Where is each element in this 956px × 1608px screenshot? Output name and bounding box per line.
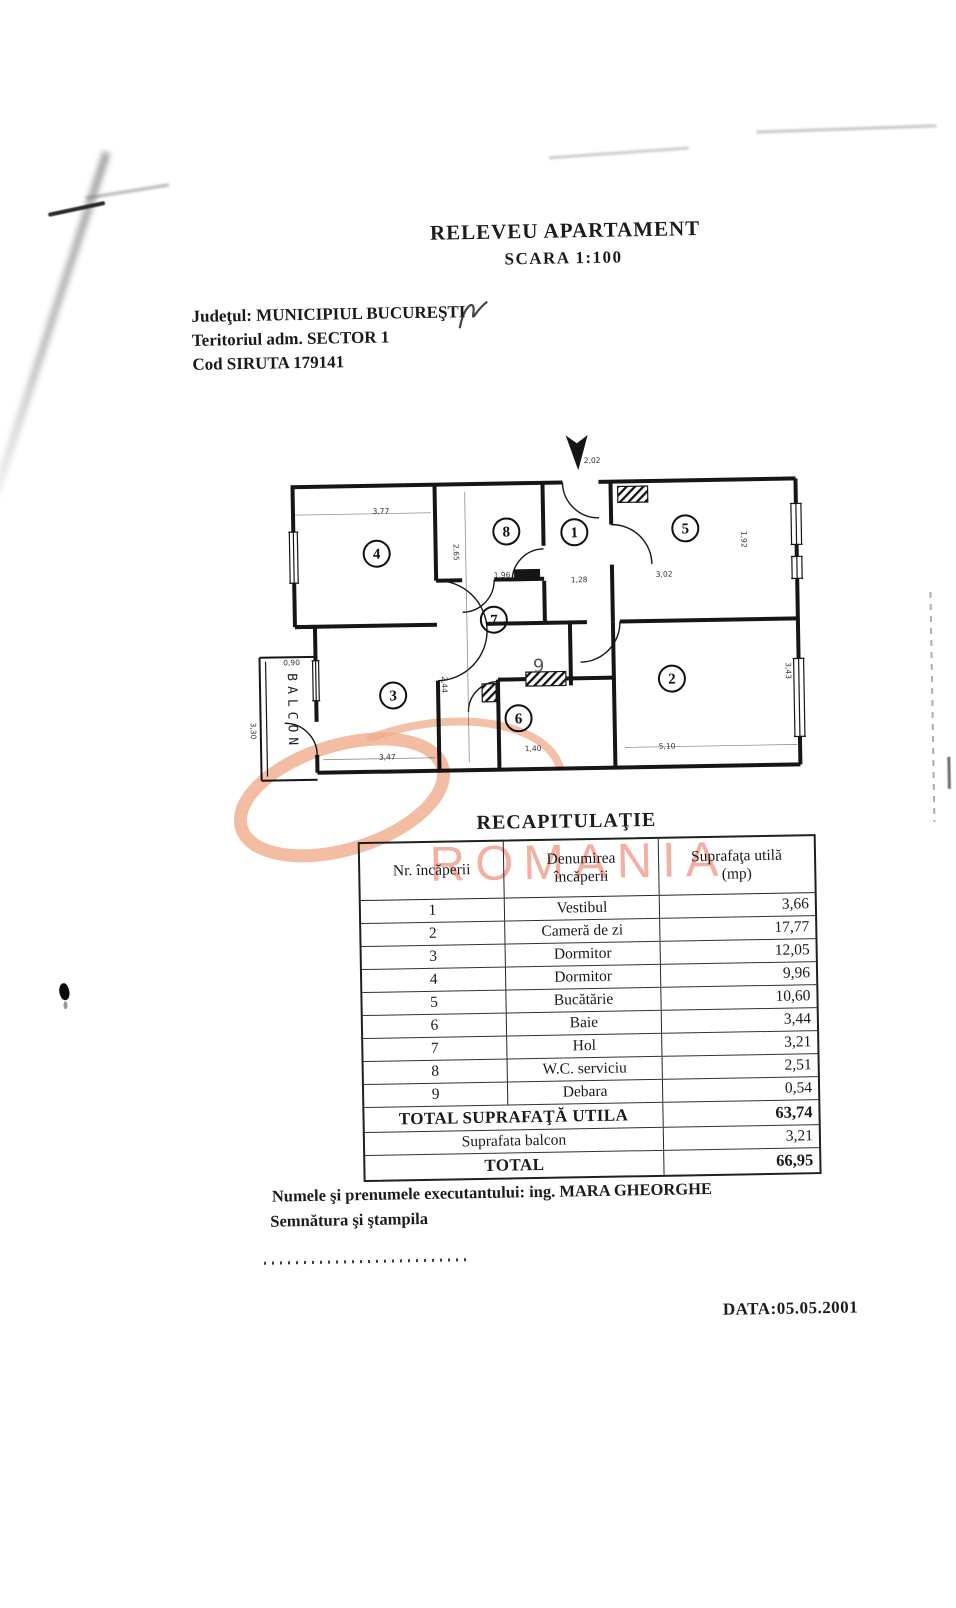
cell-area: 3,66 bbox=[660, 893, 815, 918]
hatched-shaft bbox=[526, 671, 566, 686]
shaft-block bbox=[514, 569, 540, 579]
cell-nr: 4 bbox=[362, 968, 506, 993]
ink-blob-artifact bbox=[63, 1001, 67, 1009]
room-marker: 9 bbox=[533, 656, 545, 677]
siruta-line: Cod SIRUTA 179141 bbox=[192, 348, 466, 377]
room-marker: 5 bbox=[672, 515, 698, 541]
county-line: Judeţul: MUNICIPIUL BUCUREŞTI bbox=[191, 300, 465, 329]
cell-name: Debara bbox=[508, 1080, 663, 1105]
scanned-page: RELEVEU APARTAMENT SCARA 1:100 Judeţul: … bbox=[0, 0, 956, 1608]
header-nr-label: Nr. încăperii bbox=[393, 861, 471, 880]
signature-line: Semnătura şi ştampila bbox=[270, 1209, 428, 1232]
cell-area: 9,96 bbox=[661, 962, 816, 987]
dimension-label: 3,43 bbox=[784, 662, 793, 679]
cell-nr: 3 bbox=[362, 945, 506, 970]
dimension-label: 3,77 bbox=[373, 507, 390, 516]
scan-streak-artifact bbox=[0, 151, 110, 496]
cell-area: 10,60 bbox=[661, 985, 816, 1010]
ink-blob-artifact bbox=[57, 982, 71, 1001]
header-denumirea-line1: Denumirea bbox=[546, 850, 615, 869]
door-arc bbox=[611, 524, 652, 565]
scale-label: SCARA 1:100 bbox=[504, 247, 622, 269]
cell-area: 3,44 bbox=[662, 1008, 817, 1033]
pen-mark-artifact-faint bbox=[86, 183, 169, 199]
door-arc bbox=[437, 630, 488, 681]
smudge-artifact bbox=[756, 124, 936, 133]
cell-name: Bucătărie bbox=[506, 988, 661, 1013]
door-arc bbox=[436, 580, 487, 631]
total-util-value: 63,74 bbox=[663, 1100, 818, 1127]
room-number: 9 bbox=[533, 656, 545, 677]
table-title: RECAPITULAŢIE bbox=[476, 809, 656, 835]
window-symbol bbox=[793, 658, 806, 736]
pen-mark-artifact bbox=[48, 201, 106, 217]
cell-name: Cameră de zi bbox=[505, 919, 660, 944]
window-symbol bbox=[288, 532, 299, 583]
room-number: 8 bbox=[502, 524, 510, 540]
table-body: 1Vestibul3,662Cameră de zi17,773Dormitor… bbox=[361, 893, 819, 1108]
cell-nr: 1 bbox=[361, 899, 505, 924]
dimension-label: 1,92 bbox=[739, 531, 748, 548]
room-number: 2 bbox=[668, 672, 676, 688]
header-denumirea: Denumirea încăperii bbox=[504, 839, 660, 898]
hatched-shaft bbox=[618, 486, 648, 503]
cell-name: Dormitor bbox=[506, 965, 661, 990]
dimension-label: 2,44 bbox=[440, 676, 449, 693]
page-title: RELEVEU APARTAMENT bbox=[430, 216, 701, 246]
room-number: 1 bbox=[570, 525, 578, 541]
dimension-label: 2,02 bbox=[584, 456, 601, 465]
table-header-row: Nr. încăperii Denumirea încăperii Supraf… bbox=[360, 836, 815, 901]
dimension-label: 5,10 bbox=[659, 742, 676, 751]
executor-line: Numele şi prenumele executantului: ing. … bbox=[272, 1179, 712, 1207]
header-suprafata-line2: (mp) bbox=[722, 865, 752, 884]
entrance-arrow-icon bbox=[566, 435, 589, 470]
cell-area: 17,77 bbox=[660, 916, 815, 941]
header-denumirea-line2: încăperii bbox=[554, 868, 609, 887]
room-marker: 8 bbox=[493, 518, 519, 544]
cell-name: W.C. serviciu bbox=[508, 1057, 663, 1082]
balcony-value: 3,21 bbox=[664, 1125, 819, 1150]
header-suprafata-line1: Suprafaţa utilă bbox=[691, 847, 782, 867]
cell-name: Baie bbox=[507, 1011, 662, 1036]
cell-area: 0,54 bbox=[663, 1077, 818, 1102]
window-symbol bbox=[312, 661, 321, 701]
room-marker: 7 bbox=[481, 606, 507, 632]
cell-area: 2,51 bbox=[663, 1054, 818, 1079]
total-value: 66,95 bbox=[664, 1148, 819, 1175]
room-marker: 4 bbox=[363, 541, 389, 567]
cell-nr: 6 bbox=[363, 1014, 507, 1039]
dimension-label: 2,65 bbox=[452, 544, 461, 561]
room-marker: 1 bbox=[561, 519, 587, 545]
recap-table: Nr. încăperii Denumirea încăperii Supraf… bbox=[358, 834, 822, 1182]
dotted-signature-line bbox=[264, 1258, 472, 1265]
cell-nr: 2 bbox=[361, 922, 505, 947]
cell-nr: 5 bbox=[362, 991, 506, 1016]
scan-mark-artifact bbox=[947, 757, 951, 789]
address-block: Judeţul: MUNICIPIUL BUCUREŞTI Teritoriul… bbox=[191, 300, 466, 377]
dimension-label: 1,96 bbox=[494, 570, 511, 579]
window-symbol bbox=[791, 556, 803, 578]
cell-nr: 8 bbox=[364, 1060, 508, 1085]
room-marker: 2 bbox=[659, 665, 685, 691]
total-label: TOTAL bbox=[365, 1151, 664, 1180]
cell-nr: 7 bbox=[363, 1037, 507, 1062]
cell-name: Dormitor bbox=[506, 942, 661, 967]
cell-name: Vestibul bbox=[505, 896, 660, 921]
date-line: DATA:05.05.2001 bbox=[723, 1297, 859, 1319]
cell-nr: 9 bbox=[364, 1083, 508, 1108]
cell-name: Hol bbox=[507, 1034, 662, 1059]
dimension-label: 3,02 bbox=[656, 570, 673, 579]
cell-area: 3,21 bbox=[662, 1031, 817, 1056]
smudge-artifact bbox=[549, 147, 689, 160]
header-suprafata: Suprafaţa utilă (mp) bbox=[659, 836, 815, 895]
window-symbol bbox=[790, 503, 803, 544]
scan-dash-artifact bbox=[929, 592, 935, 822]
room-number: 5 bbox=[681, 521, 689, 537]
door-arc bbox=[562, 482, 599, 519]
header-nr: Nr. încăperii bbox=[360, 842, 505, 901]
room-number: 4 bbox=[373, 547, 381, 563]
cell-area: 12,05 bbox=[661, 939, 816, 964]
room-number: 7 bbox=[490, 613, 498, 629]
dimension-label: 0,90 bbox=[283, 658, 300, 667]
dimension-label: 1,28 bbox=[571, 575, 588, 584]
